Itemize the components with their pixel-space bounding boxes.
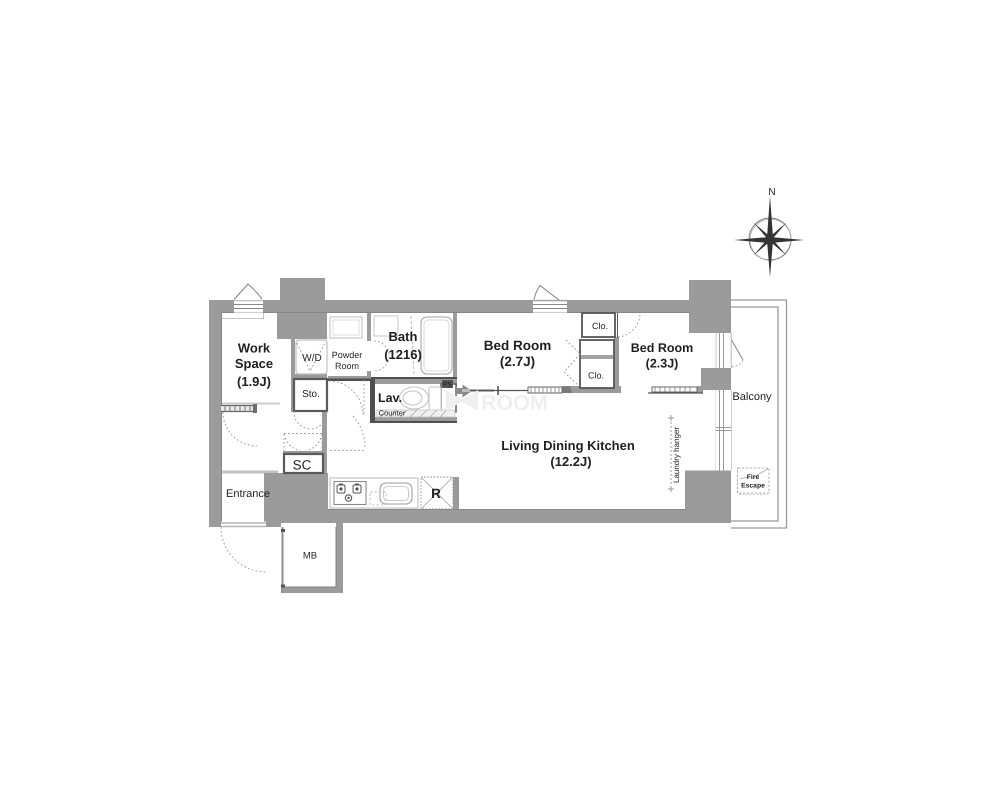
svg-text:Counter: Counter <box>379 409 406 418</box>
svg-text:Entrance: Entrance <box>226 488 270 500</box>
svg-text:(1.9J): (1.9J) <box>237 374 271 389</box>
svg-text:SC: SC <box>293 458 312 473</box>
svg-text:MB: MB <box>303 551 317 562</box>
svg-text:Balcony: Balcony <box>732 391 772 403</box>
svg-text:(12.2J): (12.2J) <box>550 454 591 469</box>
svg-text:Bed Room: Bed Room <box>631 341 694 355</box>
svg-text:Bed Room: Bed Room <box>484 338 552 353</box>
svg-text:Escape: Escape <box>741 483 765 490</box>
svg-text:ROOM: ROOM <box>481 391 548 415</box>
svg-text:Room: Room <box>335 361 359 371</box>
svg-text:R: R <box>431 486 441 501</box>
svg-text:Sto.: Sto. <box>302 389 320 400</box>
svg-text:PS: PS <box>443 382 452 389</box>
svg-text:Bath: Bath <box>389 329 418 344</box>
svg-text:Space: Space <box>235 356 273 371</box>
svg-text:(2.7J): (2.7J) <box>500 354 535 369</box>
svg-text:W/D: W/D <box>302 353 321 364</box>
svg-text:Laundry hanger: Laundry hanger <box>672 427 681 483</box>
svg-text:Powder: Powder <box>332 350 363 360</box>
svg-text:Fire: Fire <box>747 474 760 481</box>
svg-text:Living Dining Kitchen: Living Dining Kitchen <box>501 438 635 453</box>
svg-text:(2.3J): (2.3J) <box>646 357 679 371</box>
svg-text:Lav.: Lav. <box>378 391 402 405</box>
svg-text:Work: Work <box>238 341 271 356</box>
svg-text:N: N <box>768 187 775 198</box>
svg-text:(1216): (1216) <box>384 347 422 362</box>
svg-text:Clo.: Clo. <box>588 371 604 381</box>
svg-text:Clo.: Clo. <box>592 321 608 331</box>
